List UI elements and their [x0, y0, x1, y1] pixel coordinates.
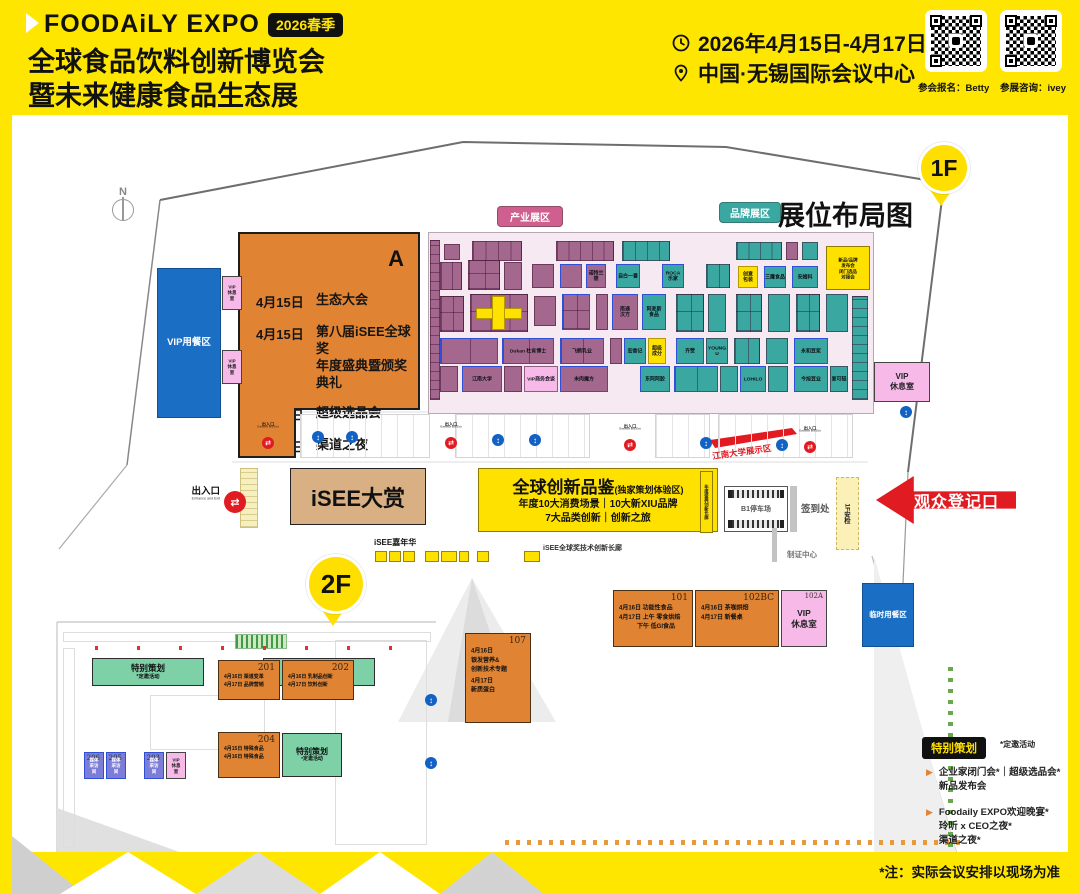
- booth-label: 超级 成分: [649, 345, 665, 356]
- session-room-number: 107: [509, 636, 526, 646]
- escalator-icon: ↕: [492, 434, 504, 446]
- entrance-exit-icon: ⇄: [224, 491, 246, 513]
- carnival-booth: [524, 551, 540, 562]
- map: N 1F 展位布局图 产业展区 品牌展区 A 4月15日生态大会4月15日第八届…: [0, 0, 1080, 894]
- room-VIP用餐区: VIP用餐区: [157, 268, 221, 418]
- special-planning-note: *定邀活动: [1000, 739, 1035, 750]
- escalator-icon: ↕: [425, 757, 437, 769]
- isee-carnival-label: iSEE嘉年华: [374, 537, 416, 548]
- booth-label: 自白一番: [617, 273, 639, 279]
- room-number: 102A: [805, 592, 823, 600]
- room-label: 媒体采访间: [112, 757, 121, 774]
- booth-东阿阿胶: 东阿阿胶: [640, 366, 670, 392]
- booth-label: 东阿阿胶: [641, 376, 669, 382]
- booth: [440, 296, 464, 332]
- session-schedule: 4月16日 乳制品创新4月17日 饮料创新: [288, 673, 355, 689]
- clock-icon: [672, 34, 690, 52]
- floor-1f-pin: 1F: [918, 142, 970, 194]
- booth: [766, 338, 788, 364]
- booth: [504, 262, 522, 290]
- room-VIP休息室: VIP休息室: [166, 752, 186, 779]
- booth: [440, 366, 458, 392]
- booth-label: 安姆科: [793, 274, 817, 280]
- header: FOODAiLY EXPO 2026春季 全球食品饮料创新博览会 暨未来健康食品…: [0, 0, 1080, 115]
- booth-label: 未肉魔方: [561, 376, 608, 382]
- booth: [826, 294, 848, 332]
- room-label: 特别策划*定邀活动: [131, 663, 165, 680]
- room-媒体采访间: 203媒体采访间: [144, 752, 164, 779]
- room-新品/品牌发布会闭门选品对接会: 新品/品牌发布会闭门选品对接会: [826, 246, 870, 290]
- booth: [736, 294, 762, 332]
- session-room-107: 1074月16日银发营养&创新技术专题4月17日新质蛋白: [465, 633, 531, 723]
- booth-label: ROCA 乐家: [663, 270, 683, 281]
- entrance-marker-label: 出入口Entrance and Exit: [600, 423, 660, 435]
- room-媒体采访间: 206媒体采访间: [84, 752, 104, 779]
- hall-a: A 4月15日生态大会4月15日第八届iSEE全球奖 年度盛典暨颁奖典礼4月16…: [238, 232, 420, 410]
- booth-VIP商务会谈: VIP商务会谈: [524, 366, 558, 392]
- booth-飞鹤乳业: 飞鹤乳业: [560, 338, 604, 364]
- booth-LOHILO: LOHILO: [740, 366, 766, 392]
- room-媒体采访间: 205媒体采访间: [106, 752, 126, 779]
- expo-floorplan-poster: FOODAiLY EXPO 2026春季 全球食品饮料创新博览会 暨未来健康食品…: [0, 0, 1080, 894]
- room-label: VIP休息室: [791, 608, 817, 629]
- booth-label: 复可轻: [831, 376, 847, 382]
- zone-badge-industry: 产业展区: [497, 206, 563, 227]
- booth: [708, 294, 726, 332]
- floor-2f-pin: 2F: [306, 554, 366, 614]
- booth-超级成分: 超级 成分: [648, 338, 666, 364]
- zone-badge-brand: 品牌展区: [719, 202, 781, 223]
- booth-label: 飞鹤乳业: [561, 348, 604, 354]
- escalator-icon: ↕: [346, 431, 358, 443]
- event-venue: 中国·无锡国际会议中心: [672, 58, 915, 88]
- booth: [534, 296, 556, 326]
- room-label: 临时用餐区: [869, 610, 907, 619]
- booth: [596, 294, 608, 330]
- event-title-line2: 暨未来健康食品生态展: [28, 74, 298, 113]
- booth-江南大学: 江南大学: [462, 366, 502, 392]
- compass: N: [112, 186, 134, 221]
- booth: [786, 242, 798, 260]
- booth: [430, 240, 440, 400]
- hall-a-schedule-row: 4月15日第八届iSEE全球奖 年度盛典暨颁奖典礼: [256, 324, 418, 392]
- carnival-booth: [375, 551, 387, 562]
- booth: [556, 241, 614, 261]
- booth-创意包装: 创意 包装: [738, 266, 758, 288]
- booth: [706, 264, 730, 288]
- room-label: VIP休息室: [228, 359, 237, 376]
- qr-center-logo: [949, 34, 963, 48]
- map-title: 展位布局图: [778, 194, 913, 233]
- b1-parking: B1停车场: [724, 486, 788, 532]
- session-room-number: 204: [258, 735, 275, 745]
- carnival-booth: [459, 551, 469, 562]
- booth-label: 三鹰食品: [765, 274, 785, 280]
- booth-YOUNG U: YOUNG U: [706, 338, 728, 364]
- qr-center-logo: [1024, 34, 1038, 48]
- room-VIP休息室: VIP休息室: [874, 362, 930, 402]
- room-临时用餐区: 临时用餐区: [862, 583, 914, 647]
- audience-entry-arrow: 观众登记口: [876, 476, 1016, 524]
- room-label: VIP休息室: [172, 757, 181, 774]
- booth-label: Dukan 杜肯博士: [503, 348, 554, 354]
- bullet-arrow-icon: ▶: [926, 766, 933, 795]
- session-room-number: 201: [258, 663, 275, 673]
- qr-register-label: 参会报名：Betty: [918, 80, 998, 94]
- room-label: 媒体采访间: [150, 757, 159, 774]
- booth-label: 江南大学: [463, 376, 502, 382]
- carnival-booth: [389, 551, 401, 562]
- room-特别策划*定邀活动: 特别策划*定邀活动: [92, 658, 204, 686]
- qr-consult-label: 参展咨询：ivey: [1000, 80, 1080, 94]
- session-schedule: 4月16日 茶咖烘焙4月17日 新餐桌: [701, 603, 779, 622]
- booth-label: 齐赞: [677, 348, 703, 354]
- security-check-strip: 1F安检: [836, 477, 859, 550]
- special-planning-badge: 特别策划: [922, 737, 986, 759]
- booth-label: 诺特兰德: [587, 270, 605, 281]
- booth-label: VIP商务会谈: [525, 376, 558, 382]
- entrance-exit-left-label: 出入口 Entrance and Exit: [160, 487, 220, 503]
- session-schedule: 4月16日银发营养&创新技术专题4月17日新质蛋白: [471, 646, 532, 694]
- carnival-booth: [441, 551, 457, 562]
- entrance-marker-label: 出入口Entrance and Exit: [238, 421, 298, 433]
- booth-label: 永和豆浆: [795, 348, 828, 354]
- carnival-booth: [425, 551, 439, 562]
- booth-安姆科: 安姆科: [792, 266, 818, 288]
- booth-ROCA乐家: ROCA 乐家: [662, 264, 684, 288]
- booth: [852, 296, 868, 400]
- qr-code-register: [925, 10, 987, 72]
- bullet-arrow-icon: ▶: [926, 806, 933, 849]
- booth-未肉魔方: 未肉魔方: [560, 366, 608, 392]
- special-bullet: ▶企业家闭门会*｜超级选品会* 新品发布会: [926, 766, 1074, 795]
- booth: [674, 366, 718, 392]
- escalator-icon: ↕: [425, 694, 437, 706]
- booth-齐赞: 齐赞: [676, 338, 704, 364]
- booth-宏香记: 宏香记: [624, 338, 646, 364]
- carnival-booth: [403, 551, 415, 562]
- entrance-icon: ⇄: [804, 441, 816, 453]
- booth-label: YOUNG U: [707, 345, 727, 356]
- badge-center-label: 制证中心: [787, 549, 817, 560]
- hall-a-schedule-row: 4月15日生态大会: [256, 292, 418, 311]
- innovation-tasting-zone: 全球创新品鉴(独家策划体验区) 年度10大消费场景｜10大新XIU品牌 7大品类…: [478, 468, 718, 532]
- booth-label: LOHILO: [741, 376, 765, 382]
- session-room-101: 1014月16日 功能性食品4月17日 上午 零食烘焙 下午 低GI食品: [613, 590, 693, 647]
- brand-name: FOODAiLY EXPO: [44, 10, 260, 39]
- room-label: VIP休息室: [228, 285, 237, 302]
- booth: [472, 241, 522, 261]
- booth: [768, 294, 790, 332]
- booth-南通汉方: 南通 汉方: [612, 294, 638, 330]
- session-schedule: 4月16日 功能性食品4月17日 上午 零食烘焙 下午 低GI食品: [619, 603, 693, 631]
- room-label: 媒体采访间: [90, 757, 99, 774]
- compass-needle-icon: [112, 199, 134, 221]
- escalator-icon: ↕: [776, 439, 788, 451]
- booth: [562, 294, 590, 330]
- booth: [768, 366, 788, 392]
- booth: [796, 294, 820, 332]
- event-date-text: 2026年4月15日-4月17日: [698, 28, 927, 58]
- escalator-icon: ↕: [700, 437, 712, 449]
- booth: [560, 264, 582, 288]
- session-room-201: 2014月16日 渠道变革4月17日 品牌营销: [218, 660, 280, 700]
- escalator-icon: ↕: [312, 431, 324, 443]
- footnote: *注：实际会议安排以现场为准: [879, 861, 1060, 881]
- booth-复可轻: 复可轻: [830, 366, 848, 392]
- room-VIP休息室: VIP休息室: [222, 350, 242, 384]
- booth: [492, 296, 505, 330]
- b1-parking-label: B1停车场: [725, 504, 787, 514]
- entrance-icon: ⇄: [445, 437, 457, 449]
- signin-label: 签到处: [801, 501, 830, 515]
- booth: [504, 366, 522, 392]
- booth-永和豆浆: 永和豆浆: [794, 338, 828, 364]
- hall-a-entrance-bay: [238, 408, 296, 458]
- booth: [622, 241, 670, 261]
- booth-自白一番: 自白一番: [616, 264, 640, 288]
- booth: [720, 366, 738, 392]
- room-label: 特别策划*定邀活动: [296, 747, 328, 763]
- session-room-102BC: 102BC4月16日 茶咖烘焙4月17日 新餐桌: [695, 590, 779, 647]
- room-特别策划*定邀活动: 特别策划*定邀活动: [282, 733, 342, 777]
- isee-award-hall: iSEE大赏: [290, 468, 426, 525]
- booth-label: 创意 包装: [739, 271, 757, 282]
- session-room-204: 2044月15日 特殊食品4月16日 特殊食品: [218, 732, 280, 778]
- booth: [610, 338, 622, 364]
- entrance-marker-label: 出入口Entrance and Exit: [421, 421, 481, 433]
- booth: [468, 260, 500, 290]
- entrance-icon: ⇄: [624, 439, 636, 451]
- room-VIP休息室: 102AVIP休息室: [781, 590, 827, 647]
- room-label: VIP休息室: [890, 372, 914, 392]
- event-venue-text: 中国·无锡国际会议中心: [698, 58, 915, 88]
- tech-innovation-corridor-label: iSEE全球奖技术创新长廊: [543, 543, 622, 553]
- booth: [736, 242, 782, 260]
- booth-label: 南通 汉方: [613, 306, 637, 317]
- booth: [676, 294, 704, 332]
- session-room-number: 202: [332, 663, 349, 673]
- booth-阿麦斯食品: 阿麦斯 食品: [642, 294, 666, 330]
- booth-label: 阿麦斯 食品: [643, 306, 665, 317]
- booth-今旭豆业: 今旭豆业: [794, 366, 828, 392]
- booth-Dukan 杜肯博士: Dukan 杜肯博士: [502, 338, 554, 364]
- booth: [440, 262, 462, 290]
- entrance-icon: ⇄: [262, 437, 274, 449]
- carnival-booth: [477, 551, 489, 562]
- session-room-number: 101: [671, 593, 688, 603]
- booth-label: 今旭豆业: [795, 376, 828, 382]
- hall-a-label: A: [388, 246, 404, 272]
- brand-triangle-icon: [26, 13, 39, 33]
- booth: [444, 244, 460, 260]
- session-room-202: 2024月16日 乳制品创新4月17日 饮料创新: [282, 660, 354, 700]
- entrance-marker-label: 出入口Entrance and Exit: [780, 425, 840, 437]
- session-room-number: 102BC: [743, 593, 774, 603]
- annual-gala-corridor-strip: 年度盛典创新长廊: [700, 471, 713, 533]
- booth-label: 宏香记: [625, 348, 645, 354]
- session-schedule: 4月16日 渠道变革4月17日 品牌营销: [224, 673, 281, 689]
- room-label: VIP用餐区: [167, 337, 211, 349]
- booth-诺特兰德: 诺特兰德: [586, 264, 606, 288]
- location-pin-icon: [672, 64, 690, 82]
- special-planning-bullets: ▶企业家闭门会*｜超级选品会* 新品发布会▶Foodaily EXPO欢迎晚宴*…: [926, 766, 1074, 859]
- booth: [802, 242, 818, 260]
- escalator-icon: ↕: [529, 434, 541, 446]
- booth: [532, 264, 554, 288]
- escalator-icon: ↕: [900, 406, 912, 418]
- event-date: 2026年4月15日-4月17日: [672, 28, 927, 58]
- session-schedule: 4月15日 特殊食品4月16日 特殊食品: [224, 745, 281, 761]
- special-bullet: ▶Foodaily EXPO欢迎晚宴* 玲听 x CEO之夜* 渠道之夜*: [926, 806, 1074, 849]
- season-badge: 2026春季: [268, 13, 343, 37]
- booth: [440, 338, 498, 364]
- room-label: 新品/品牌发布会闭门选品对接会: [838, 257, 859, 280]
- booth: [734, 338, 760, 364]
- booth-三鹰食品: 三鹰食品: [764, 266, 786, 288]
- qr-code-consult: [1000, 10, 1062, 72]
- room-VIP休息室: VIP休息室: [222, 276, 242, 310]
